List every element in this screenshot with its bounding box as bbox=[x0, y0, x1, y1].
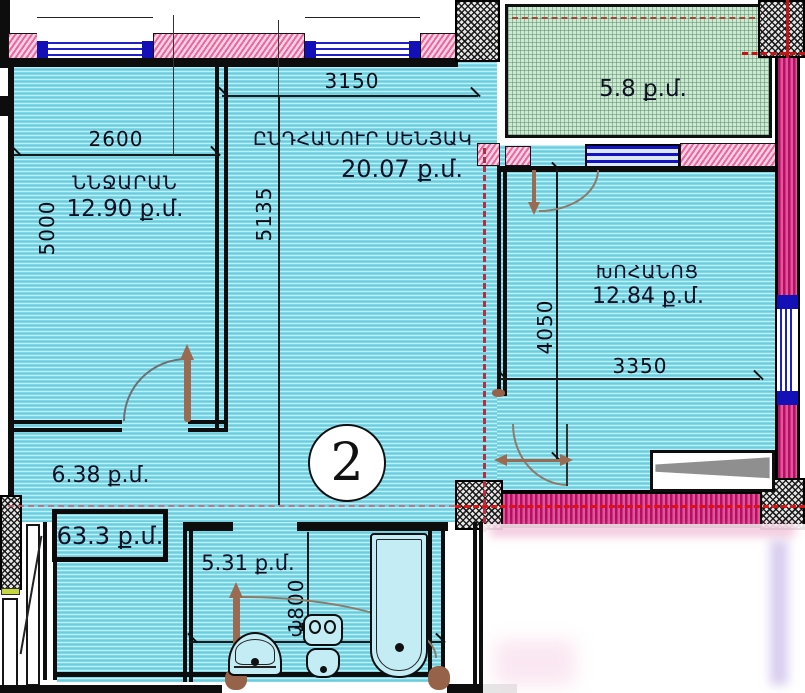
bedroom-area: 12.90 ք.մ. bbox=[55, 196, 195, 222]
unit-number-badge: 2 bbox=[308, 424, 386, 502]
window-kitchen bbox=[775, 295, 800, 405]
sink-ledge bbox=[234, 666, 276, 668]
axis-red-horizontal-wall bbox=[455, 505, 805, 508]
toilet-bowl bbox=[306, 648, 340, 678]
axis-red-horizontal-right bbox=[742, 52, 805, 55]
dim-line bbox=[14, 154, 218, 156]
window-jamb bbox=[777, 391, 798, 405]
wall-bathroom-top-left bbox=[183, 522, 233, 531]
kitchen-counter-icon bbox=[650, 450, 775, 492]
balcony-door-leaf bbox=[532, 170, 536, 206]
window-glazing bbox=[780, 309, 795, 391]
kitchen-door-arrow-left bbox=[494, 454, 507, 466]
window-glazing bbox=[306, 42, 419, 59]
column-top-right bbox=[758, 0, 805, 58]
column-top bbox=[455, 0, 500, 62]
toilet-icon bbox=[303, 614, 343, 682]
sink-faucet bbox=[251, 658, 259, 666]
hallway-area: 6.38 ք.մ. bbox=[48, 463, 153, 488]
marker-yellow bbox=[1, 588, 20, 595]
bathtub-icon bbox=[370, 533, 428, 678]
wall-bathroom-left bbox=[183, 522, 193, 682]
entrance-door-jamb bbox=[428, 666, 450, 690]
unit-number: 2 bbox=[330, 437, 363, 489]
stair-door-leaf-outside bbox=[2, 598, 18, 688]
balcony-axis-red-dash bbox=[512, 17, 765, 19]
bedroom-name: ՆՆՋԱՐԱՆ bbox=[55, 172, 195, 194]
total-area-label: 63.3 ք.մ. bbox=[57, 522, 164, 550]
bedroom-door-arrow bbox=[180, 344, 194, 360]
wall-bedroom-bottom-right bbox=[188, 420, 228, 432]
balcony-door-arrow bbox=[528, 202, 540, 215]
dim-extension bbox=[278, 20, 279, 95]
dim-line bbox=[278, 97, 280, 505]
dim-extension bbox=[173, 15, 174, 155]
kitchen-counter-shade bbox=[653, 453, 772, 489]
wall-living-kitchen bbox=[497, 166, 507, 396]
wall-bottom-crimson bbox=[480, 490, 805, 528]
toilet-tank-circle bbox=[324, 620, 336, 634]
wall-bottom-outer-left bbox=[0, 685, 222, 693]
window-glazing bbox=[38, 42, 152, 59]
axis-red-horizontal-floor bbox=[8, 505, 455, 507]
floor-main bbox=[8, 55, 497, 522]
wall-top-inner-edge bbox=[0, 58, 458, 67]
dim-kitchen-height: 4050 bbox=[533, 295, 557, 359]
faded-pink-ghost bbox=[495, 640, 575, 685]
window-living bbox=[305, 17, 420, 62]
wall-left bbox=[8, 60, 14, 522]
kitchen-name: ԽՈՀԱՆՈՑ bbox=[590, 262, 705, 283]
bedroom-door-leaf bbox=[184, 358, 191, 422]
dim-kitchen-width: 3350 bbox=[608, 354, 672, 378]
kitchen-area: 12.84 ք.մ. bbox=[588, 284, 708, 309]
dim-line bbox=[500, 378, 760, 380]
wall-unit-boundary bbox=[473, 522, 483, 690]
wall-bedroom-living bbox=[215, 62, 228, 432]
wall-balcony-stub1 bbox=[477, 143, 500, 166]
wall-bathroom-top-right bbox=[297, 522, 448, 531]
dim-living-height: 5135 bbox=[252, 182, 276, 246]
faded-window-ghost bbox=[770, 540, 788, 685]
toilet-tank-circle bbox=[309, 620, 321, 634]
entrance-door-arrow bbox=[229, 582, 243, 598]
living-area: 20.07 ք.մ. bbox=[340, 155, 464, 183]
floor-plan: 2600 5000 3150 5135 4050 3350 1800 3000 … bbox=[0, 0, 805, 693]
balcony-area bbox=[505, 4, 772, 138]
window-jamb bbox=[777, 295, 798, 309]
kitchen-door-arrow-line bbox=[504, 459, 562, 462]
window-bedroom bbox=[37, 17, 153, 62]
wall-left-notch bbox=[0, 96, 8, 116]
toilet-dot bbox=[320, 666, 327, 673]
dim-line bbox=[222, 95, 478, 97]
bathtub-drain bbox=[395, 643, 404, 652]
kitchen-door-arrow-right bbox=[560, 454, 573, 466]
dim-bedroom-width: 2600 bbox=[78, 127, 154, 151]
faded-wall-ghost bbox=[490, 526, 795, 536]
axis-red-vertical bbox=[483, 148, 486, 532]
kitchen-door-jamb bbox=[492, 389, 505, 397]
column-bottom-left bbox=[0, 495, 22, 590]
wall-bedroom-bottom-left bbox=[8, 420, 122, 432]
wall-balcony-stub2 bbox=[505, 146, 531, 166]
total-area-box: 63.3 ք.մ. bbox=[52, 509, 168, 562]
living-name: ԸՆԴՀԱՆՈՒՐ ՍԵՆՅԱԿ bbox=[253, 128, 465, 150]
sink-icon bbox=[228, 632, 282, 676]
bathroom-area: 5.31 ք.մ. bbox=[198, 551, 298, 575]
dim-living-width: 3150 bbox=[320, 69, 384, 93]
wall-right-upper bbox=[775, 58, 800, 295]
balcony-area: 5.8 ք.մ. bbox=[598, 76, 688, 102]
